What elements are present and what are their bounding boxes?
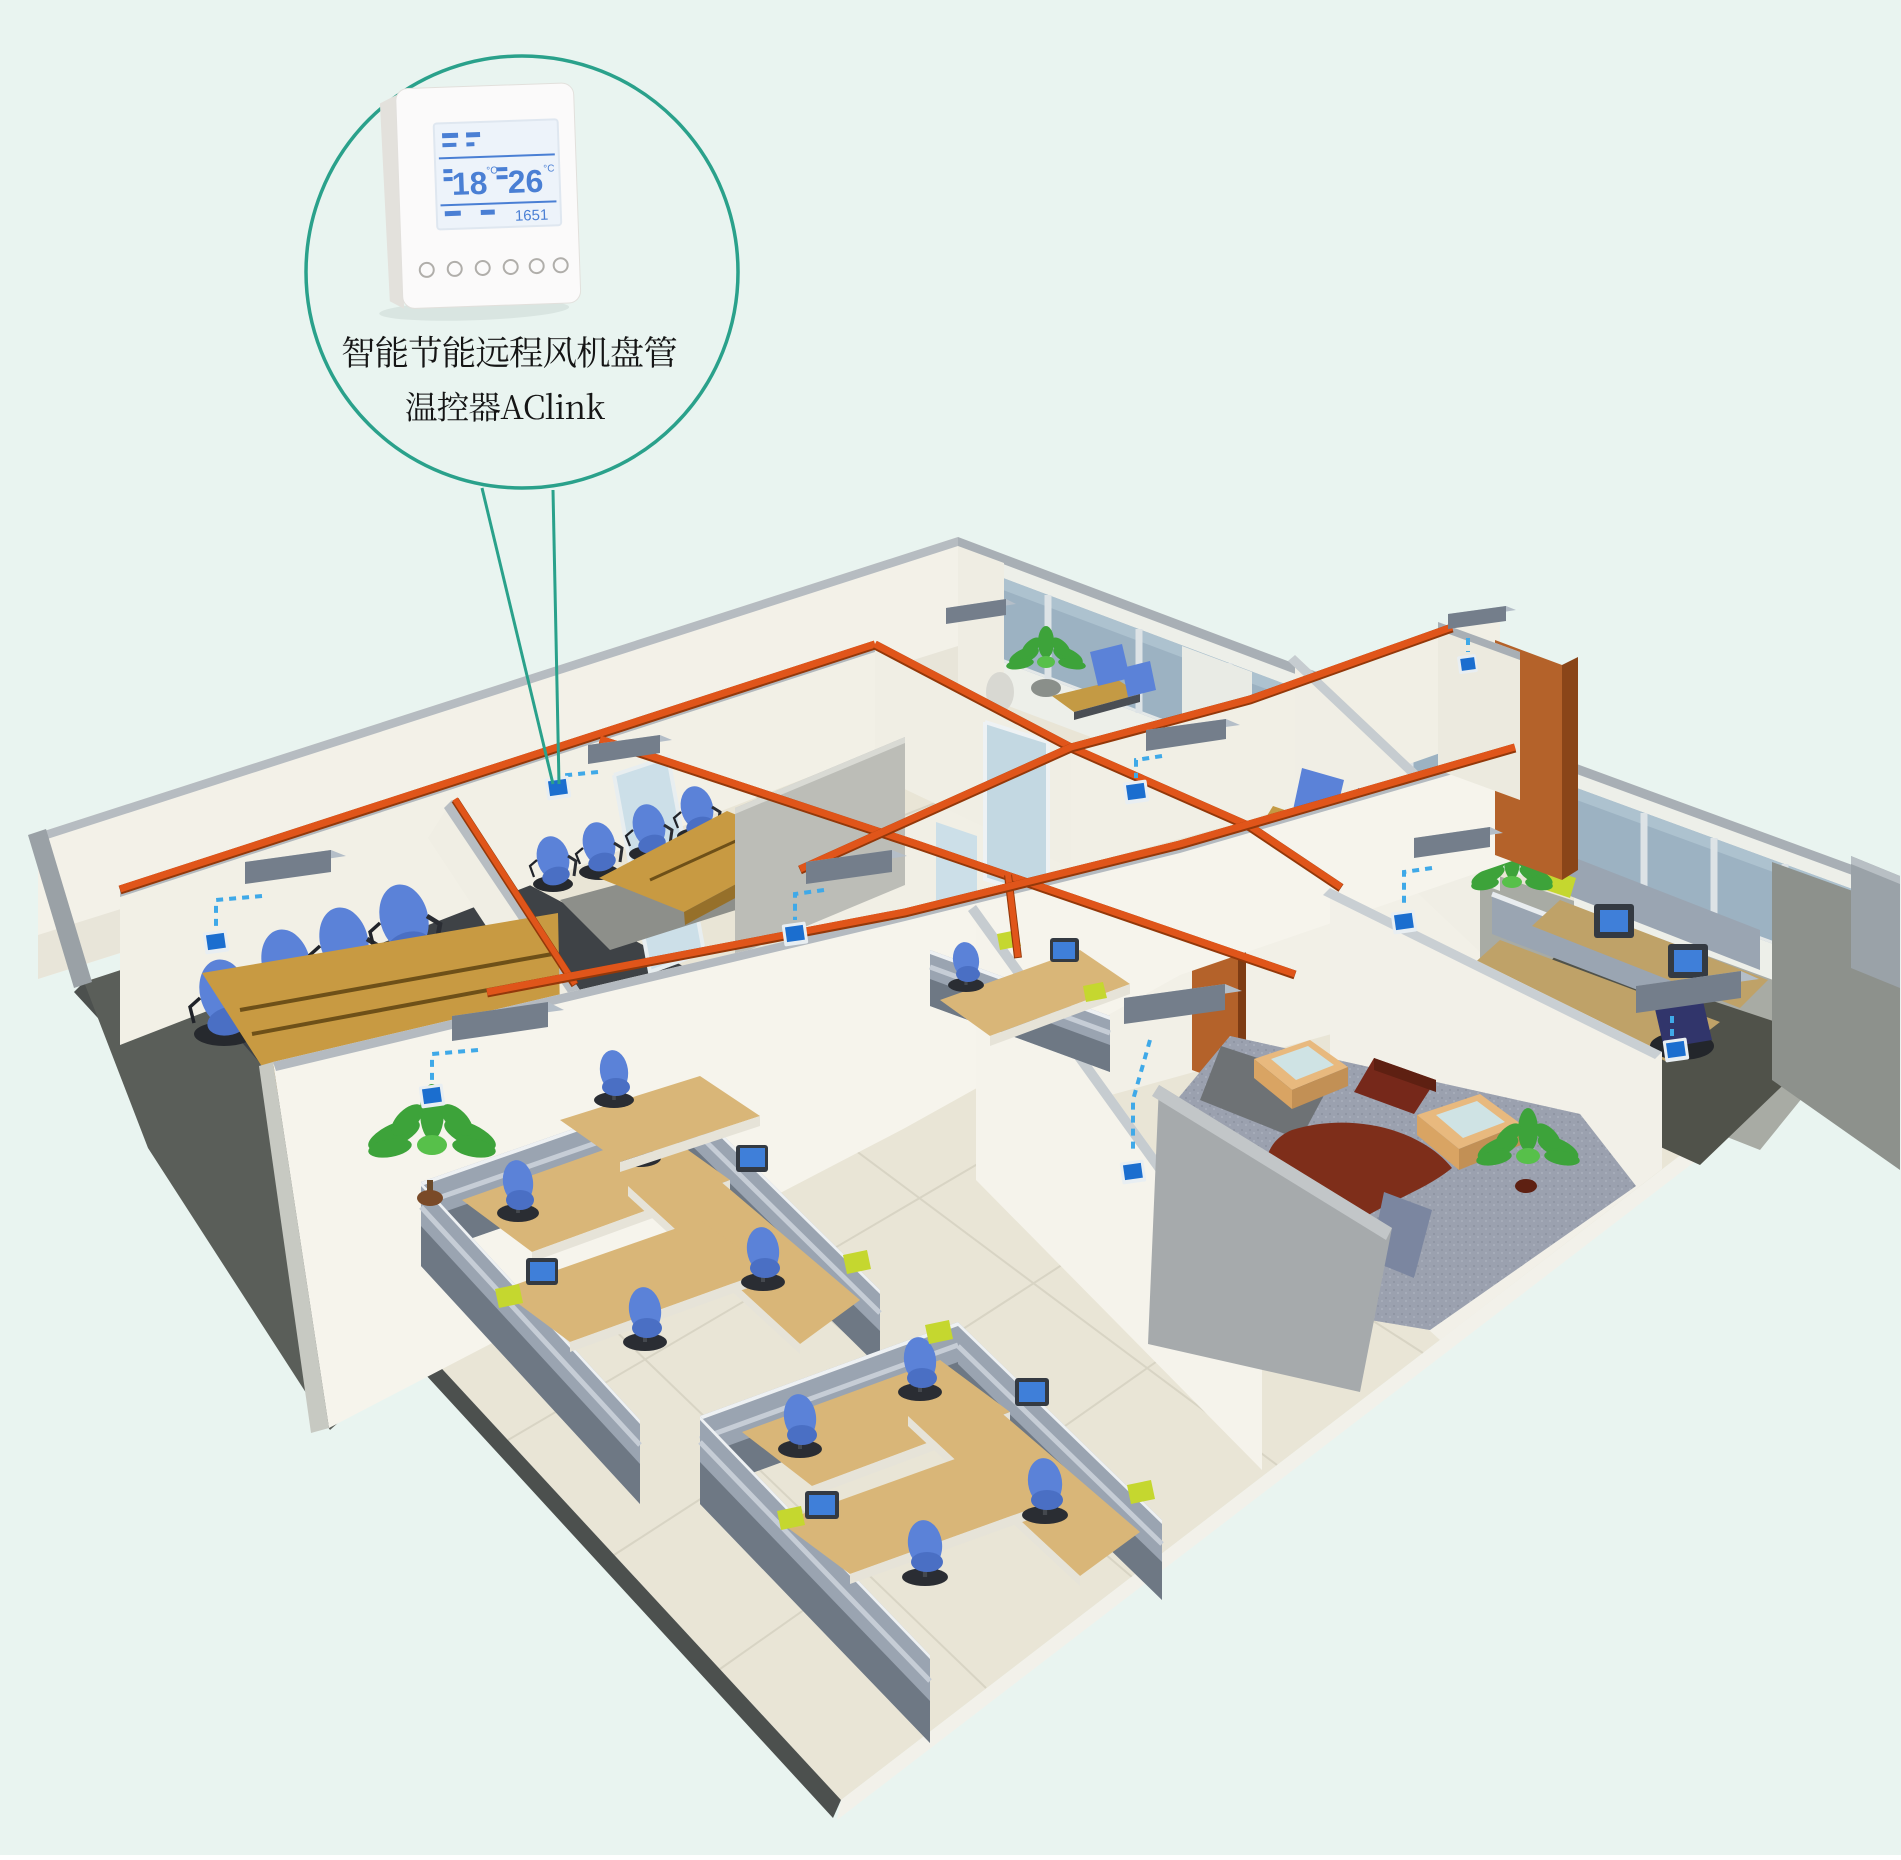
svg-text:18: 18: [451, 165, 488, 202]
svg-text:°C: °C: [543, 163, 555, 174]
svg-text:°C: °C: [486, 165, 498, 176]
svg-text:26: 26: [507, 163, 544, 200]
svg-text:1651: 1651: [515, 207, 549, 225]
